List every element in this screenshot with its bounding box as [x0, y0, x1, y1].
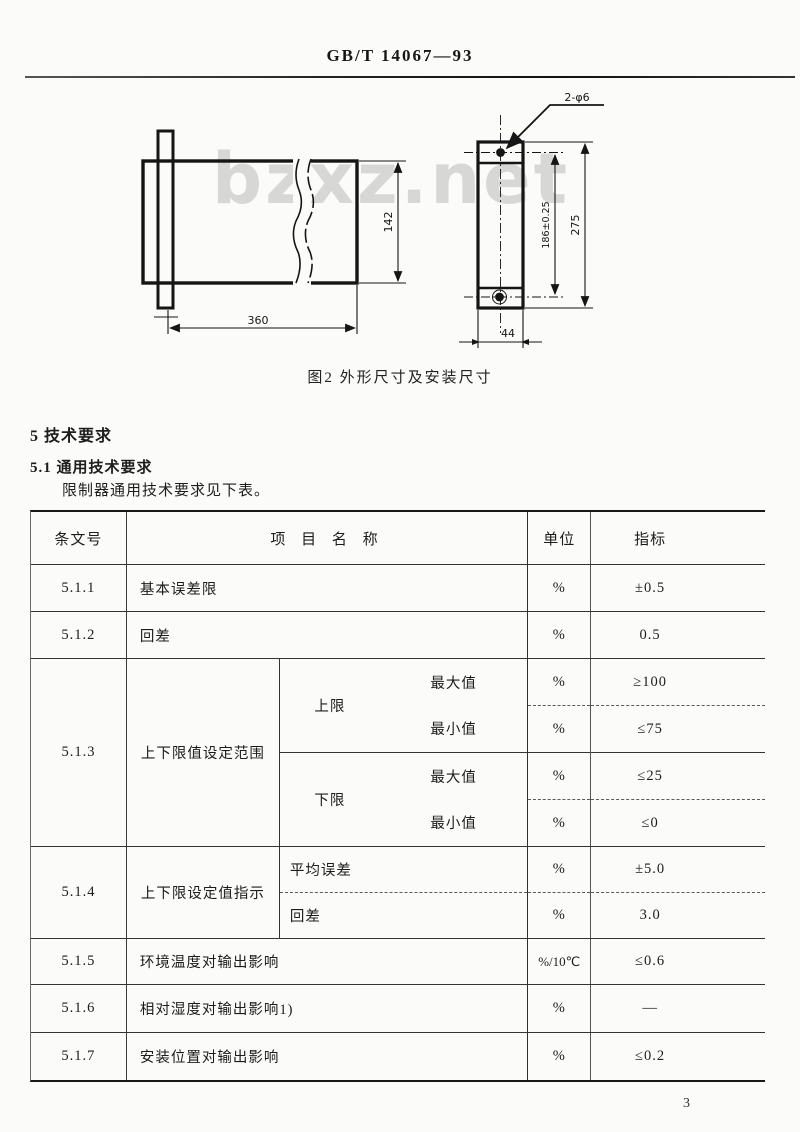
- dim-mount-width: 44: [501, 327, 515, 340]
- table-header-row: 条文号 项 目 名 称 单位 指标: [31, 512, 765, 564]
- col-header-unit: 单位: [527, 512, 590, 564]
- figure-2-drawing: 142 360 2-φ6 186±0.25 275: [88, 85, 654, 365]
- value-cell: ≥100: [591, 659, 765, 705]
- limit-label: 上限: [280, 659, 380, 752]
- value-cell: 0.5: [590, 612, 765, 658]
- item-name: 回差: [126, 612, 527, 658]
- item-name: 环境温度对输出影响: [126, 939, 527, 984]
- unit-cell: %: [528, 752, 590, 799]
- value-cell: —: [590, 985, 765, 1032]
- min-label: 最小值: [380, 706, 527, 753]
- section-5-1-intro: 限制器通用技术要求见下表。: [62, 479, 270, 500]
- clause-no: 5.1.5: [31, 939, 126, 984]
- col-header-index: 指标: [590, 512, 765, 564]
- dim-hole-spacing: 186±0.25: [541, 201, 552, 248]
- value-cell: ≤25: [591, 752, 765, 799]
- max-label: 最大值: [380, 753, 527, 800]
- header-rule: [25, 76, 795, 78]
- col-header-clause: 条文号: [31, 512, 126, 564]
- section-5-heading: 5 技术要求: [30, 422, 112, 446]
- clause-no: 5.1.4: [31, 847, 126, 938]
- clause-no: 5.1.6: [31, 985, 126, 1032]
- value-cell: ≤75: [591, 705, 765, 752]
- unit-cell: %: [528, 799, 590, 846]
- col-header-item: 项 目 名 称: [126, 512, 527, 564]
- table-row: 5.1.2 回差 % 0.5: [31, 611, 765, 658]
- avg-error-label: 平均误差: [280, 847, 527, 892]
- min-label: 最小值: [380, 800, 527, 847]
- section-5-1-heading: 5.1 通用技术要求: [30, 456, 153, 477]
- unit-cell: %: [528, 892, 590, 938]
- value-cell: 3.0: [591, 892, 765, 938]
- dim-body-height: 142: [382, 212, 395, 233]
- unit-cell: %: [527, 985, 590, 1032]
- figure-caption: 图2 外形尺寸及安装尺寸: [0, 366, 800, 387]
- unit-cell: %: [527, 1033, 590, 1080]
- clause-no: 5.1.2: [31, 612, 126, 658]
- value-cell: ≤0.6: [590, 939, 765, 984]
- unit-cell: %: [527, 612, 590, 658]
- max-label: 最大值: [380, 659, 527, 706]
- table-row: 5.1.1 基本误差限 % ±0.5: [31, 564, 765, 611]
- hysteresis-label: 回差: [280, 892, 527, 938]
- clause-no: 5.1.3: [31, 659, 126, 846]
- dim-hole-note: 2-φ6: [564, 91, 589, 104]
- limit-label: 下限: [280, 753, 380, 846]
- item-name: 上下限设定值指示: [127, 847, 279, 938]
- table-row-setpoint-indication: 5.1.4 上下限设定值指示 平均误差 回差 % % ±5.0 3.0: [31, 846, 765, 938]
- unit-cell: %: [527, 565, 590, 611]
- dim-body-length: 360: [248, 314, 269, 327]
- value-cell: ±5.0: [591, 847, 765, 892]
- clause-no: 5.1.1: [31, 565, 126, 611]
- standard-number: GB/T 14067—93: [0, 46, 800, 66]
- item-name: 上下限值设定范围: [127, 659, 279, 846]
- value-cell: ≤0.2: [590, 1033, 765, 1080]
- unit-cell: %: [528, 847, 590, 892]
- table-row: 5.1.5 环境温度对输出影响 %/10℃ ≤0.6: [31, 938, 765, 984]
- side-view: [143, 131, 406, 334]
- page-number: 3: [683, 1096, 690, 1112]
- requirements-table: 条文号 项 目 名 称 单位 指标 5.1.1 基本误差限 % ±0.5 5.1…: [30, 510, 765, 1082]
- value-cell: ±0.5: [590, 565, 765, 611]
- item-name: 基本误差限: [126, 565, 527, 611]
- table-row: 5.1.7 安装位置对输出影响 % ≤0.2: [31, 1032, 765, 1080]
- table-row-setting-range: 5.1.3 上下限值设定范围 上限 最大值 最小值 下限 最大值: [31, 658, 765, 846]
- table-row: 5.1.6 相对湿度对输出影响1) % —: [31, 984, 765, 1032]
- item-name: 相对湿度对输出影响1): [126, 985, 527, 1032]
- item-name: 安装位置对输出影响: [126, 1033, 527, 1080]
- unit-cell: %: [528, 705, 590, 752]
- front-view: [459, 105, 604, 348]
- lower-limit-group: 下限 最大值 最小值: [280, 752, 527, 846]
- dim-overall-height: 275: [569, 215, 582, 236]
- unit-cell: %/10℃: [527, 939, 590, 984]
- scanned-standard-page: GB/T 14067—93 bzxz.net 14: [0, 0, 800, 1132]
- upper-limit-group: 上限 最大值 最小值: [280, 659, 527, 752]
- value-cell: ≤0: [591, 799, 765, 846]
- unit-cell: %: [528, 659, 590, 705]
- clause-no: 5.1.7: [31, 1033, 126, 1080]
